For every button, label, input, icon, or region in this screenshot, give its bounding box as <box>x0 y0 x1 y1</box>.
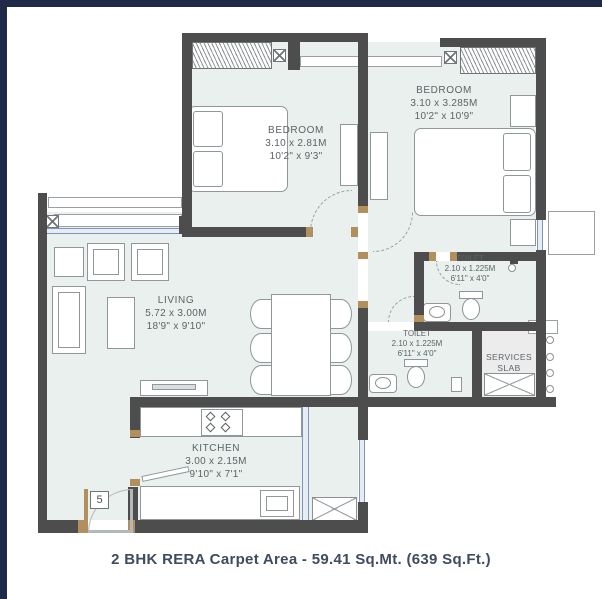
room-dim-ft: 6'11" x 4'0" <box>445 274 496 284</box>
sofa-cushion-icon <box>137 249 163 275</box>
room-name: TOILET <box>445 254 496 264</box>
duct-icon <box>312 497 357 521</box>
window-glass <box>46 228 182 234</box>
chair-icon <box>250 333 272 363</box>
pillow-icon <box>503 133 531 171</box>
duct-icon <box>484 373 535 396</box>
chair-icon <box>330 365 352 395</box>
kitchen-label: KITCHEN 3.00 x 2.15M 9'10" x 7'1" <box>185 442 246 481</box>
wall <box>358 502 368 533</box>
pipe-icon <box>546 385 554 393</box>
window-band <box>300 56 442 67</box>
washbasin-bowl-icon <box>429 306 445 318</box>
room-dim-m: 3.00 x 2.15M <box>185 455 246 468</box>
washbasin-bowl-icon <box>375 377 391 389</box>
window-marker-icon <box>46 215 59 228</box>
side-table-icon <box>510 219 536 246</box>
window-glass <box>537 220 543 251</box>
chair-icon <box>250 299 272 329</box>
wardrobe-icon <box>192 42 272 69</box>
door-jamb <box>130 430 140 437</box>
room-name: TOILET <box>392 329 443 339</box>
sofa-seat-icon <box>54 247 84 277</box>
window-sill <box>54 214 182 227</box>
bedroom2-label: BEDROOM 3.10 x 3.285M 10'2" x 10'9" <box>410 84 477 123</box>
pillow-icon <box>503 175 531 213</box>
frame-top <box>0 0 602 7</box>
coffee-table-icon <box>107 297 135 349</box>
floor-plan: BEDROOM 3.10 x 2.81M 10'2" x 9'3" BEDROO… <box>0 0 602 599</box>
door-jamb <box>358 301 368 308</box>
room-name: BEDROOM <box>265 124 326 137</box>
room-dim-ft: 6'11" x 4'0" <box>392 349 443 359</box>
balcony-glass <box>302 407 309 521</box>
room-dim-ft: 18'9" x 9'10" <box>145 320 206 333</box>
sofa-cushion-icon <box>58 292 80 348</box>
wall <box>358 407 368 440</box>
wall <box>472 331 482 397</box>
door-jamb <box>351 227 358 237</box>
wall <box>179 216 192 234</box>
toilet1-label: TOILET 2.10 x 1.225M 6'11" x 4'0" <box>445 254 496 284</box>
wall <box>358 308 368 407</box>
exterior-ledge <box>548 211 595 255</box>
room-dim-m: 2.10 x 1.225M <box>392 339 443 349</box>
window-marker-icon <box>444 51 457 64</box>
window-band <box>48 197 182 208</box>
wall <box>536 38 546 220</box>
room-dim-m: 3.10 x 2.81M <box>265 137 326 150</box>
chair-icon <box>250 365 272 395</box>
room-name: LIVING <box>145 294 206 307</box>
room-dim-ft: 9'10" x 7'1" <box>185 468 246 481</box>
wall <box>414 252 424 322</box>
room-name: KITCHEN <box>185 442 246 455</box>
sink-basin-icon <box>266 496 288 511</box>
door-jamb <box>429 252 436 261</box>
floor-drain-icon <box>451 377 462 392</box>
wall <box>358 397 556 407</box>
wardrobe-icon <box>460 47 536 74</box>
toilet2-label: TOILET 2.10 x 1.225M 6'11" x 4'0" <box>392 329 443 359</box>
services-line1: SERVICES <box>486 352 532 363</box>
room-dim-m: 2.10 x 1.225M <box>445 264 496 274</box>
wardrobe-icon <box>370 132 388 200</box>
pillow-icon <box>193 111 223 147</box>
door-jamb <box>358 252 368 259</box>
chair-icon <box>330 333 352 363</box>
wall <box>128 520 310 533</box>
room-dim-m: 5.72 x 3.00M <box>145 307 206 320</box>
frame-left <box>0 0 7 599</box>
shower-icon <box>508 264 516 272</box>
room-dim-m: 3.10 x 3.285M <box>410 97 477 110</box>
room-dim-ft: 10'2" x 9'3" <box>265 150 326 163</box>
living-label: LIVING 5.72 x 3.00M 18'9" x 9'10" <box>145 294 206 333</box>
wall <box>192 227 306 237</box>
sofa-cushion-icon <box>93 249 119 275</box>
wall <box>38 193 47 533</box>
side-table-icon <box>510 95 536 127</box>
wc-bowl-icon <box>462 298 480 320</box>
bedroom1-label: BEDROOM 3.10 x 2.81M 10'2" x 9'3" <box>265 124 326 163</box>
wall <box>130 397 358 407</box>
window-marker-icon <box>273 49 286 62</box>
wall <box>182 33 192 237</box>
wall <box>182 33 368 42</box>
door-jamb <box>358 206 368 213</box>
room-dim-ft: 10'2" x 10'9" <box>410 110 477 123</box>
pipe-icon <box>546 336 554 344</box>
entrance-number: 5 <box>90 491 109 509</box>
chair-icon <box>330 299 352 329</box>
room-name: BEDROOM <box>410 84 477 97</box>
wall <box>288 42 300 70</box>
services-line2: SLAB <box>486 363 532 374</box>
pillow-icon <box>193 151 223 187</box>
services-slab-label: SERVICES SLAB <box>486 352 532 374</box>
tv-icon <box>152 384 196 390</box>
dining-table-icon <box>271 294 331 396</box>
door-jamb <box>414 315 424 322</box>
wardrobe-icon <box>340 124 358 186</box>
balcony-glass <box>359 440 365 503</box>
wc-bowl-icon <box>407 366 425 388</box>
pipe-icon <box>546 369 554 377</box>
wall <box>358 33 368 213</box>
wall <box>440 38 546 47</box>
plan-caption: 2 BHK RERA Carpet Area - 59.41 Sq.Mt. (6… <box>0 551 602 568</box>
pipe-icon <box>546 353 554 361</box>
door-jamb <box>130 479 140 486</box>
